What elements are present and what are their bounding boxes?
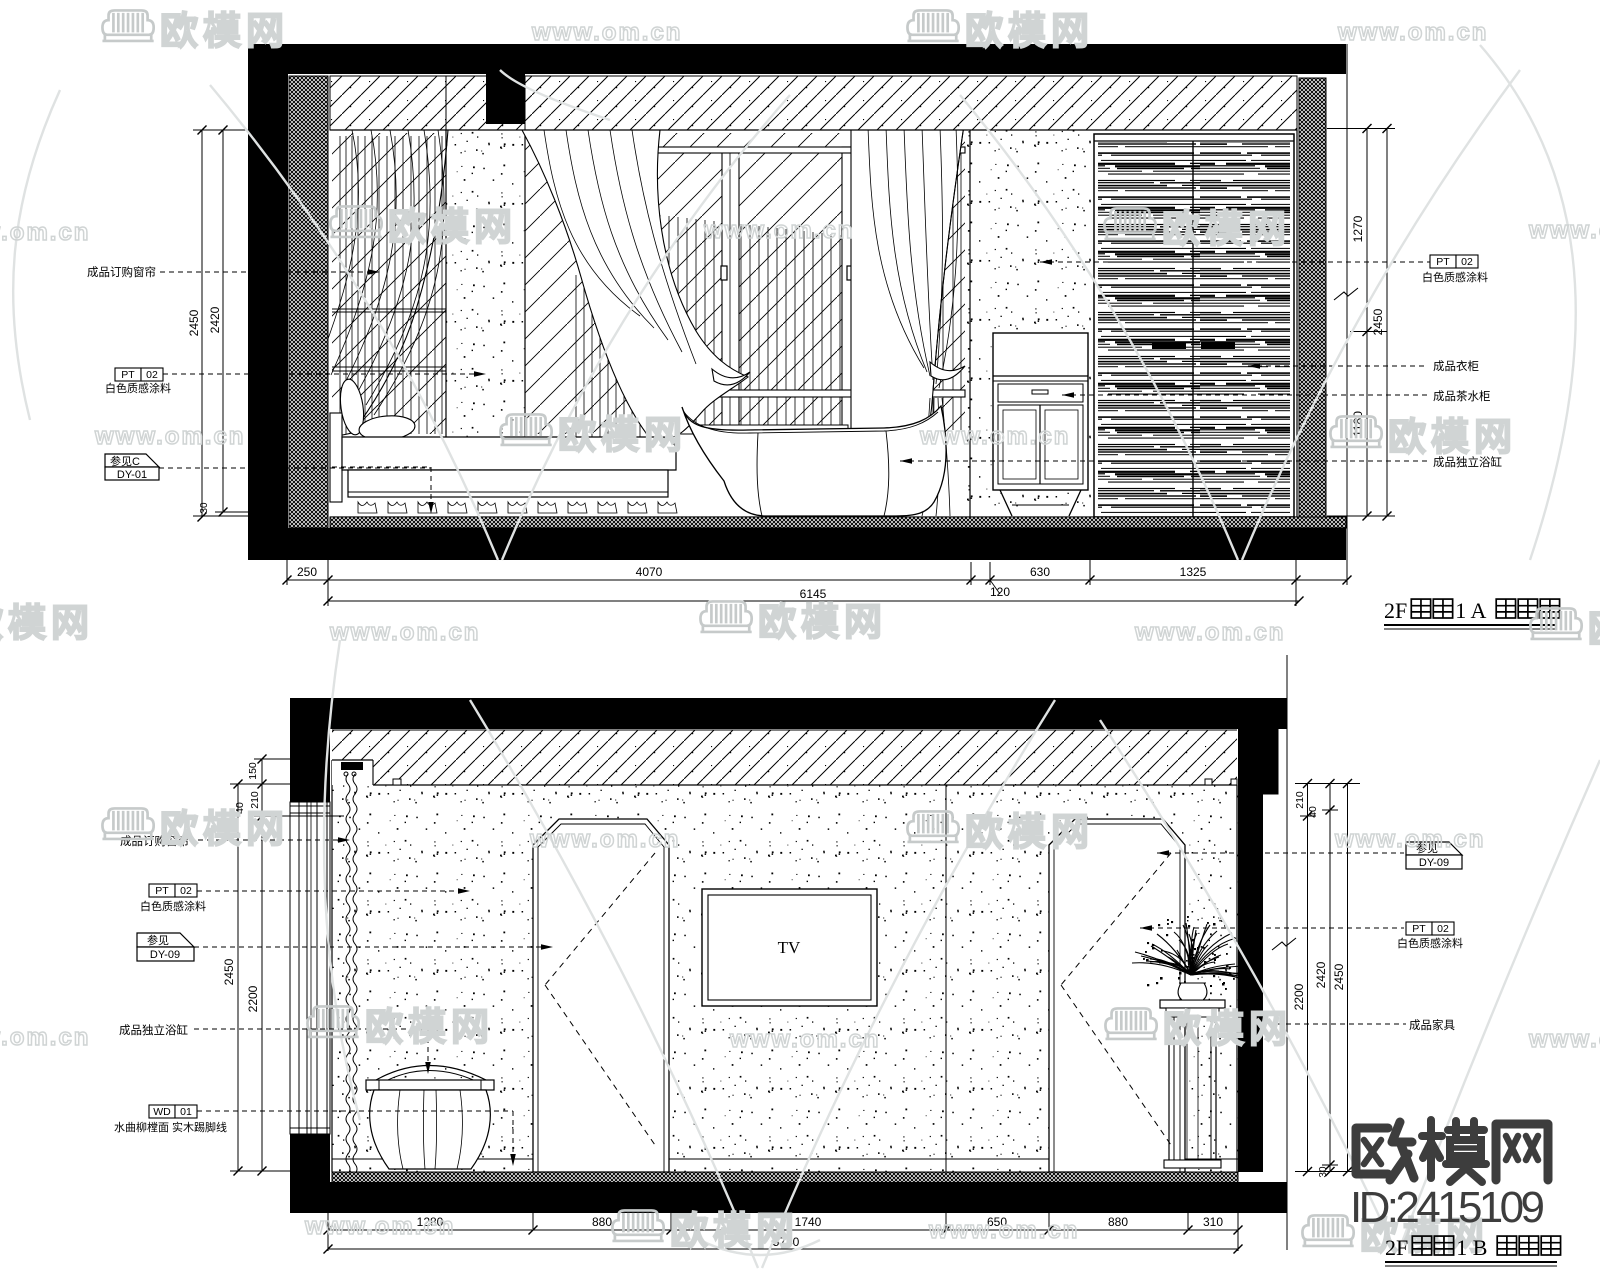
svg-text:01: 01 xyxy=(180,1106,192,1118)
svg-text:40: 40 xyxy=(1307,806,1319,818)
svg-text:www.om.cn: www.om.cn xyxy=(529,826,680,853)
svg-text:欧模网: 欧模网 xyxy=(1163,1009,1292,1051)
svg-text:水曲柳樘面 实木踢脚线: 水曲柳樘面 实木踢脚线 xyxy=(114,1120,227,1134)
svg-text:白色质感涂料: 白色质感涂料 xyxy=(140,899,206,913)
svg-text:白色质感涂料: 白色质感涂料 xyxy=(1397,936,1463,950)
svg-text:880: 880 xyxy=(1108,1215,1128,1229)
svg-text:02: 02 xyxy=(180,885,192,897)
svg-text:02: 02 xyxy=(1437,923,1449,935)
svg-text:DY-09: DY-09 xyxy=(1419,857,1449,869)
svg-text:成品衣柜: 成品衣柜 xyxy=(1433,359,1479,373)
svg-text:1 B: 1 B xyxy=(1456,1235,1487,1260)
svg-text:成品家具: 成品家具 xyxy=(1409,1018,1455,1032)
svg-text:WD: WD xyxy=(153,1106,171,1118)
svg-text:150: 150 xyxy=(247,762,259,780)
svg-text:210: 210 xyxy=(1294,791,1306,809)
svg-text:欧模网: 欧模网 xyxy=(365,1007,494,1049)
svg-text:6145: 6145 xyxy=(800,587,827,601)
svg-text:2F: 2F xyxy=(1384,598,1407,623)
svg-text:成品订购窗帘: 成品订购窗帘 xyxy=(87,265,156,279)
svg-text:白色质感涂料: 白色质感涂料 xyxy=(1422,270,1488,284)
svg-text:参见C: 参见C xyxy=(110,454,140,468)
svg-text:www.om.cn: www.om.cn xyxy=(94,423,245,450)
svg-text:30: 30 xyxy=(1318,1166,1329,1178)
svg-text:欧模网: 欧模网 xyxy=(1588,609,1600,651)
svg-text:www.om.cn: www.om.cn xyxy=(329,619,480,646)
svg-text:250: 250 xyxy=(297,565,317,579)
svg-text:欧模网: 欧模网 xyxy=(1388,417,1517,459)
svg-text:120: 120 xyxy=(990,585,1010,599)
svg-text:630: 630 xyxy=(1030,565,1050,579)
svg-text:2420: 2420 xyxy=(208,306,222,333)
svg-text:1325: 1325 xyxy=(1180,565,1207,579)
svg-text:02: 02 xyxy=(146,369,158,381)
svg-text:欧模网: 欧模网 xyxy=(965,812,1094,854)
svg-text:PT: PT xyxy=(1412,923,1426,935)
svg-text:2450: 2450 xyxy=(1371,308,1385,335)
svg-text:www.om.cn: www.om.cn xyxy=(703,217,854,244)
svg-text:参见: 参见 xyxy=(147,933,169,947)
svg-text:www.om.cn: www.om.cn xyxy=(1528,1026,1600,1053)
svg-text:欧模网: 欧模网 xyxy=(758,602,887,644)
svg-text:4070: 4070 xyxy=(636,565,663,579)
svg-text:210: 210 xyxy=(249,791,261,809)
svg-text:欧模网: 欧模网 xyxy=(558,415,687,457)
svg-text:www.om.cn: www.om.cn xyxy=(304,1213,455,1240)
svg-text:www.om.cn: www.om.cn xyxy=(919,423,1070,450)
svg-text:欧模网: 欧模网 xyxy=(388,207,517,249)
svg-text:PT: PT xyxy=(121,369,135,381)
svg-text:2450: 2450 xyxy=(1332,963,1346,990)
svg-text:2F: 2F xyxy=(1385,1235,1408,1260)
svg-text:www.om.cn: www.om.cn xyxy=(729,1026,880,1053)
svg-text:成品独立浴缸: 成品独立浴缸 xyxy=(119,1023,188,1037)
svg-text:PT: PT xyxy=(155,885,169,897)
svg-text:2450: 2450 xyxy=(222,958,236,985)
svg-text:DY-01: DY-01 xyxy=(117,469,147,481)
svg-text:1180: 1180 xyxy=(1351,411,1365,437)
svg-text:www.om.cn: www.om.cn xyxy=(531,19,682,46)
svg-text:www.om.cn: www.om.cn xyxy=(0,1024,90,1051)
svg-text:成品茶水柜: 成品茶水柜 xyxy=(1433,390,1491,403)
svg-text:www.om.cn: www.om.cn xyxy=(928,1217,1079,1244)
svg-text:2450: 2450 xyxy=(187,309,201,336)
svg-text:30: 30 xyxy=(199,502,210,514)
svg-text:1 A: 1 A xyxy=(1455,598,1486,623)
svg-text:www.om.cn: www.om.cn xyxy=(1134,619,1285,646)
svg-text:PT: PT xyxy=(1436,256,1450,268)
svg-text:欧模网: 欧模网 xyxy=(0,603,94,645)
svg-text:2200: 2200 xyxy=(246,985,260,1012)
svg-text:www.om.cn: www.om.cn xyxy=(1337,19,1488,46)
svg-text:TV: TV xyxy=(778,938,801,957)
svg-text:2200: 2200 xyxy=(1292,983,1306,1010)
svg-text:www.om.cn: www.om.cn xyxy=(0,219,90,246)
svg-text:欧模网: 欧模网 xyxy=(160,11,289,53)
svg-text:白色质感涂料: 白色质感涂料 xyxy=(105,381,171,395)
svg-text:ID:2415109: ID:2415109 xyxy=(1350,1183,1545,1232)
svg-text:欧模网: 欧模网 xyxy=(1162,209,1291,251)
svg-text:www.om.cn: www.om.cn xyxy=(1528,217,1600,244)
svg-text:02: 02 xyxy=(1461,256,1473,268)
svg-text:880: 880 xyxy=(592,1215,612,1229)
svg-text:310: 310 xyxy=(1203,1215,1223,1229)
svg-text:www.om.cn: www.om.cn xyxy=(1334,826,1485,853)
svg-text:1270: 1270 xyxy=(1351,215,1365,242)
svg-text:DY-09: DY-09 xyxy=(150,949,180,961)
svg-text:2420: 2420 xyxy=(1314,961,1328,988)
svg-text:欧模网: 欧模网 xyxy=(965,11,1094,53)
svg-text:欧模网: 欧模网 xyxy=(160,809,289,851)
svg-text:欧模网: 欧模网 xyxy=(670,1211,799,1253)
